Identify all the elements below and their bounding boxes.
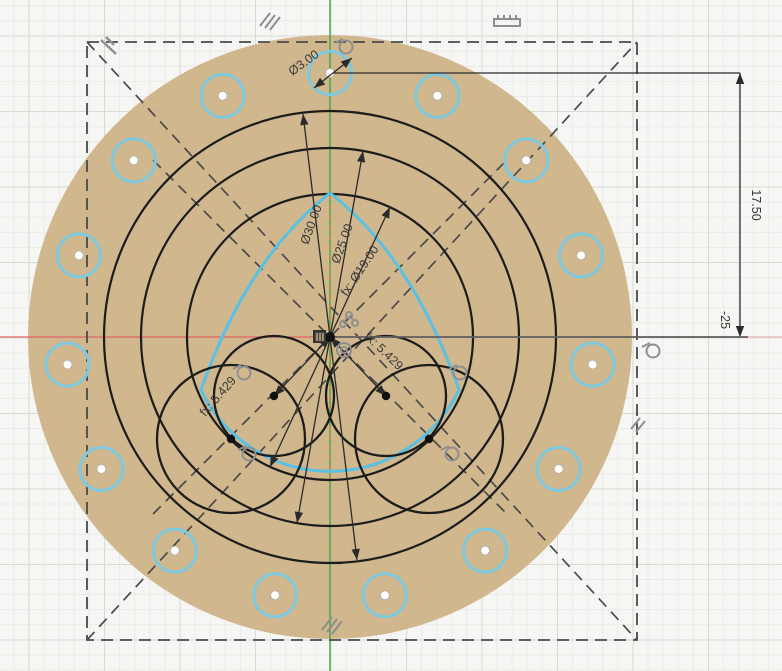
dim-arrowhead [736, 73, 744, 84]
bolt-hole-center-point[interactable] [554, 465, 563, 474]
lock-constraint-icon[interactable] [314, 331, 325, 342]
sketch-svg[interactable]: Ø3.00Ø30.00Ø25.00fx: Ø19.00fx: 5.429fx: … [0, 0, 782, 671]
bolt-hole-center-point[interactable] [577, 251, 586, 260]
bolt-hole-center-point[interactable] [218, 91, 227, 100]
circle-center-point[interactable] [425, 435, 433, 443]
parallel2-constraint-icon[interactable] [631, 418, 645, 432]
pattern-comb-constraint-icon[interactable] [494, 15, 520, 26]
bolt-hole-center-point[interactable] [271, 591, 280, 600]
bolt-hole-center-point[interactable] [129, 156, 138, 165]
sketch-canvas[interactable]: Ø3.00Ø30.00Ø25.00fx: Ø19.00fx: 5.429fx: … [0, 0, 782, 671]
dim-label-neg25[interactable]: -25 [718, 311, 732, 329]
bolt-hole-center-point[interactable] [522, 156, 531, 165]
dim-label-1750[interactable]: 17.50 [749, 189, 763, 220]
bolt-hole-center-point[interactable] [97, 465, 106, 474]
circle-center-point[interactable] [382, 392, 390, 400]
dim-arrowhead [736, 326, 744, 337]
tangent-constraint-icon[interactable] [642, 343, 660, 358]
bolt-hole-center-point[interactable] [481, 546, 490, 555]
perpendicular-constraint-icon[interactable] [101, 37, 116, 54]
parallel3-constraint-icon[interactable] [260, 13, 280, 30]
bolt-hole-center-point[interactable] [433, 91, 442, 100]
bolt-hole-center-point[interactable] [63, 360, 72, 369]
bolt-hole-center-point[interactable] [74, 251, 83, 260]
bolt-hole-center-point[interactable] [170, 546, 179, 555]
bolt-hole-center-point[interactable] [588, 360, 597, 369]
circle-center-point[interactable] [270, 392, 278, 400]
sketch-origin-point[interactable] [325, 332, 335, 342]
bolt-hole-center-point[interactable] [380, 591, 389, 600]
circle-center-point[interactable] [227, 435, 235, 443]
